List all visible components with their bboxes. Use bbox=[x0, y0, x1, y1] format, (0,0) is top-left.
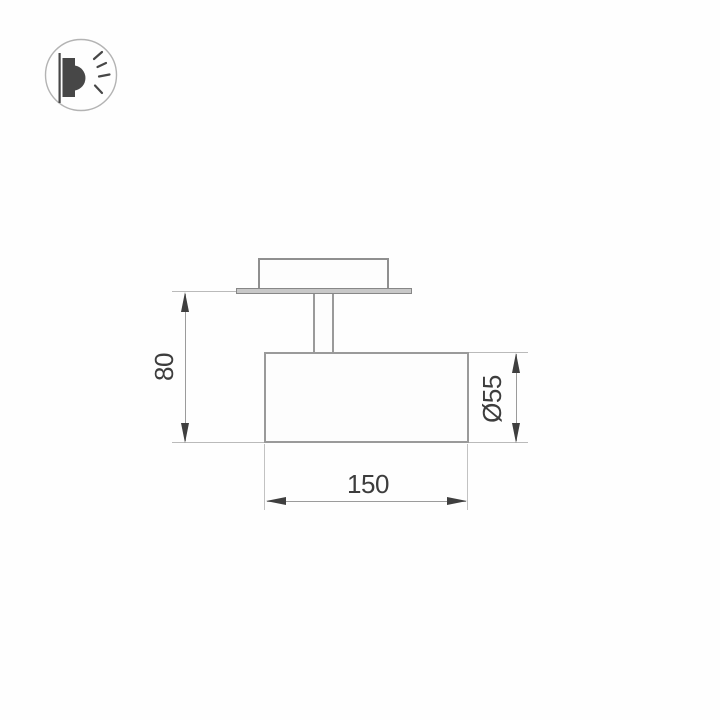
spotlight-body bbox=[264, 352, 469, 443]
wall-light-icon bbox=[44, 38, 118, 112]
swivel-stem bbox=[313, 294, 334, 354]
arrow-down-icon bbox=[512, 423, 520, 443]
icon-wall-line bbox=[59, 53, 61, 103]
arrow-left-icon bbox=[266, 497, 286, 505]
dimension-label-length: 150 bbox=[347, 471, 389, 497]
dimension-line-length bbox=[267, 501, 466, 502]
junction-box bbox=[258, 258, 389, 290]
dimension-label-height: 80 bbox=[151, 353, 177, 381]
arrow-right-icon bbox=[447, 497, 467, 505]
icon-lamp-lens bbox=[75, 66, 85, 91]
dimension-line-height bbox=[185, 294, 186, 441]
arrow-up-icon bbox=[512, 353, 520, 373]
arrow-down-icon bbox=[181, 423, 189, 443]
icon-light-rays bbox=[94, 52, 110, 93]
extension-line-length-right bbox=[467, 444, 468, 510]
drawing-canvas: 80 Ø55 150 bbox=[0, 0, 720, 720]
dimension-label-diameter: Ø55 bbox=[479, 375, 505, 423]
icon-lamp-body bbox=[63, 58, 76, 97]
arrow-up-icon bbox=[181, 292, 189, 312]
extension-line-length-left bbox=[264, 444, 265, 510]
